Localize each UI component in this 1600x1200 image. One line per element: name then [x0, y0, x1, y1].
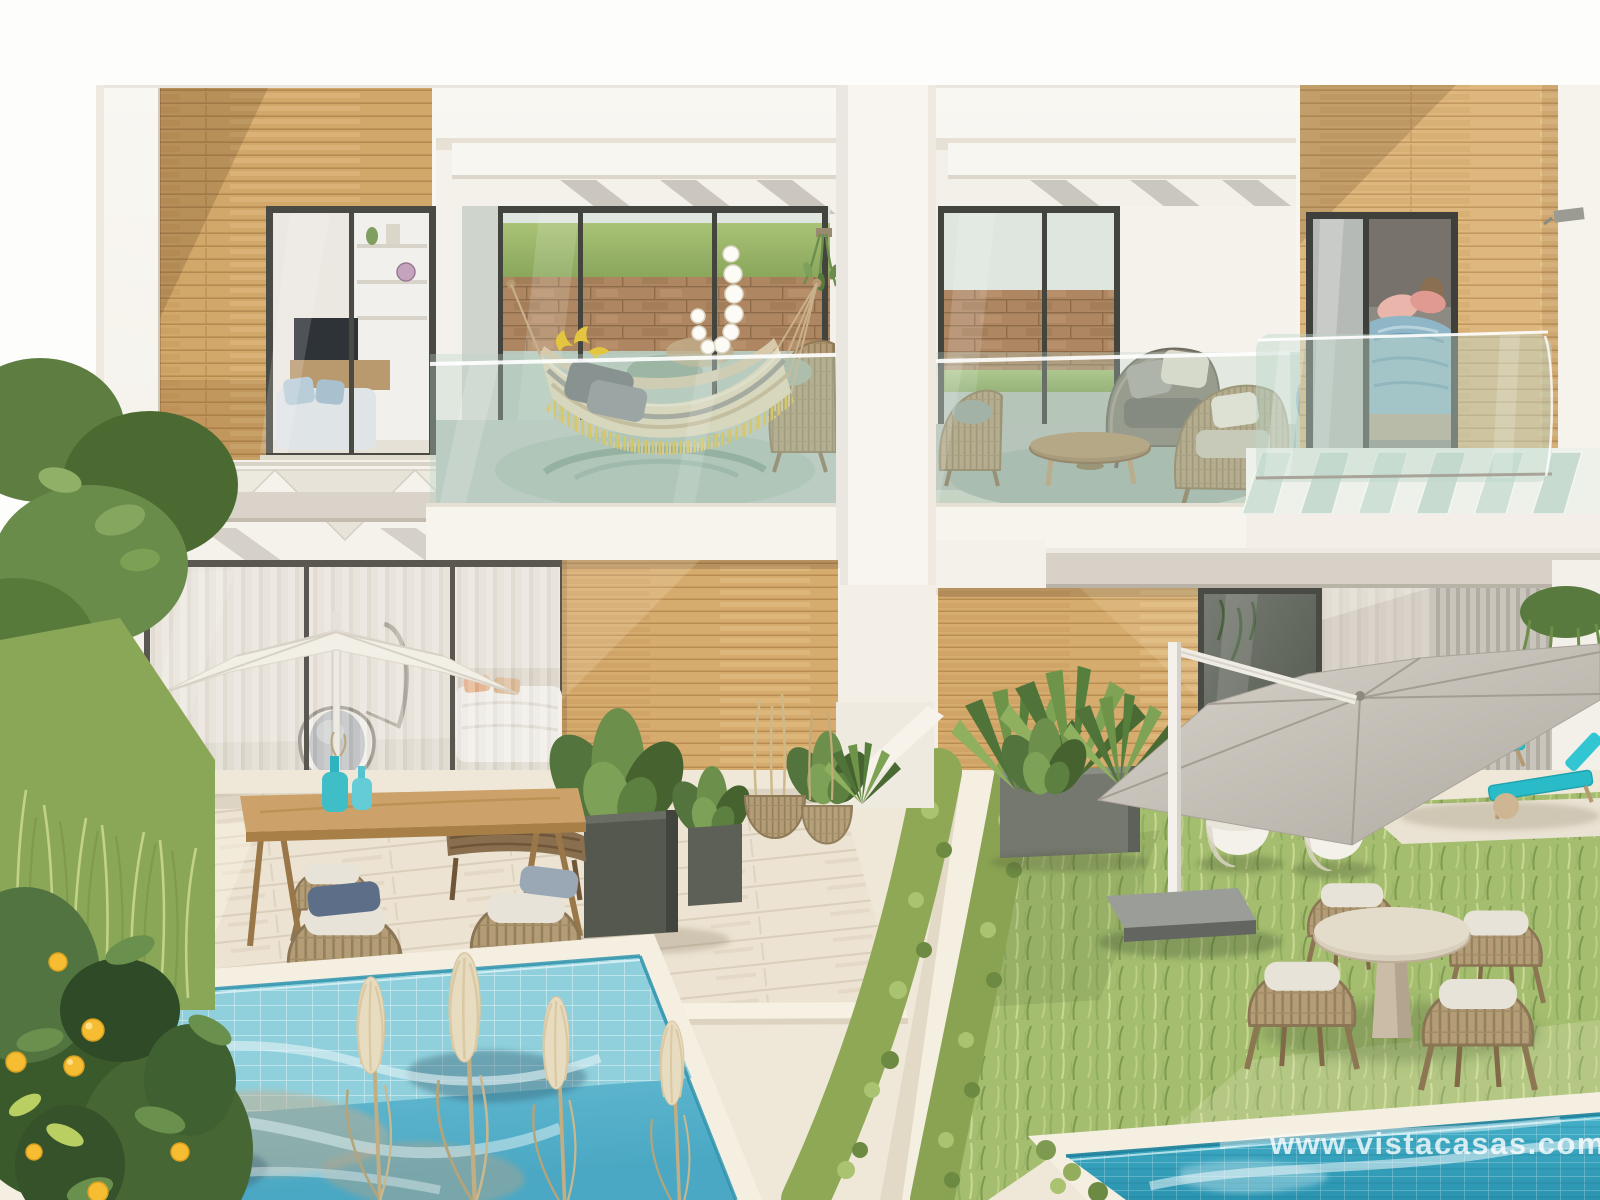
watermark: www.vistacasas.com	[1269, 1126, 1600, 1161]
shelf-vase	[366, 227, 378, 245]
center-pillar	[836, 85, 936, 805]
side-table	[1493, 793, 1519, 819]
living-room-window	[260, 206, 442, 465]
juliet-glass-balcony	[1256, 332, 1552, 482]
shelf-plate	[397, 263, 415, 281]
render-image: www.vistacasas.com	[0, 0, 1600, 1200]
glass-railing-left	[430, 351, 870, 522]
balcony-hammock	[426, 138, 878, 595]
scene-canvas: www.vistacasas.com	[0, 0, 1600, 1200]
